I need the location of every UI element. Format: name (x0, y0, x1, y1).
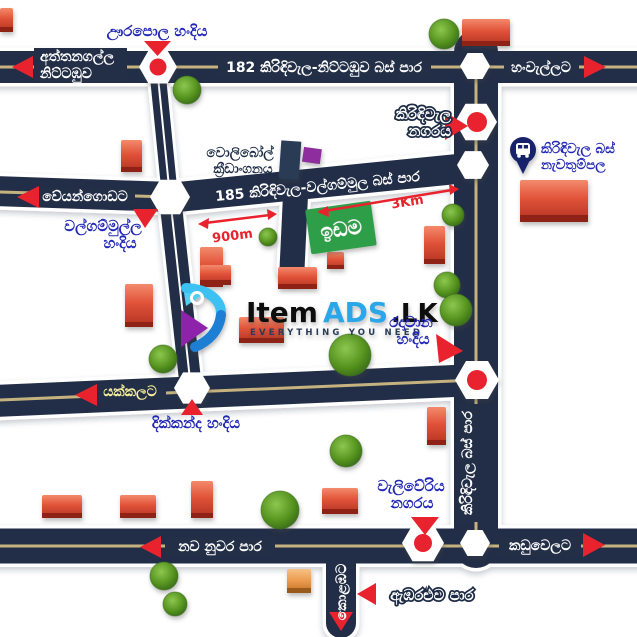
nawa-nuwara-road-label: නව නුවර පාර (177, 539, 262, 557)
yakkala-dest-label: යක්කලට (103, 383, 157, 401)
tree (173, 76, 201, 104)
bus-stop-pin (510, 137, 536, 174)
location-map: ඉඩම 900m 3Km Item ADS .LK EVER (0, 0, 637, 637)
building (322, 488, 358, 514)
building (0, 8, 13, 32)
radawana-label-line2: හංදිය (396, 330, 429, 349)
junction-dot-radawana (467, 370, 487, 390)
veyangoda-dest-label: වේයන්ගොඩට (42, 188, 128, 205)
attanagalla-dest-line2: නිට්ටඹුව (39, 65, 92, 84)
junction-dot-kirindiwela-town (467, 112, 487, 132)
tree (150, 562, 178, 590)
ambaraluwa-road-label: ඇඹරළුව පාර (390, 586, 474, 605)
attanagalla-dest-line1: අත්තනගල්ල (40, 48, 114, 66)
walgammulla-label-line2: හංදිය (103, 234, 136, 253)
building (424, 226, 445, 264)
hanwella-dest-label: හංවැල්ලට (511, 59, 571, 77)
weliweriya-label-line2: නගරය (390, 494, 434, 512)
arrow-west-ambaraluwa (357, 583, 376, 605)
kaduwela-dest-label: කඩුවෙලට (509, 538, 571, 556)
junction-dot-urapola (150, 59, 167, 76)
measure-head-west-left (198, 218, 209, 229)
building (327, 252, 344, 269)
tree (261, 491, 299, 529)
tree (259, 228, 277, 246)
bus-stop-label-line1: කිරිඳිවැල බස් (541, 140, 616, 158)
bus-stop-label-line2: නැවතුම්පල (540, 156, 606, 174)
tree (442, 204, 464, 226)
volleyball-court-building (279, 140, 302, 179)
volleyball-label-line2: ක්‍රීඩාංගනය (213, 161, 272, 179)
logo-word-item: Item (246, 296, 318, 329)
measure-label-3km: 3Km (390, 193, 425, 213)
colombo-dest-label: කොළඹට (334, 564, 351, 621)
tree (440, 294, 472, 326)
purple-building (302, 147, 322, 164)
measure-label-900m: 900m (211, 227, 253, 247)
tree (329, 334, 371, 376)
building (120, 495, 156, 518)
building (462, 19, 510, 46)
measure-head-west-right (267, 209, 277, 220)
junction-dot-weliweriya (414, 534, 432, 552)
volleyball-label-line1: වොලිබෝල් (206, 144, 274, 162)
building (278, 267, 317, 289)
measure-line-west (205, 215, 270, 223)
tree (330, 435, 362, 467)
building (121, 140, 142, 172)
route-182-label: 182 කිරිඳිවැල-නිට්ටඹුව බස් පාර (226, 59, 422, 78)
building (42, 495, 82, 518)
building (125, 284, 153, 327)
building (427, 407, 446, 445)
tree (163, 592, 187, 616)
road-center-lines (0, 60, 637, 546)
building-orange (287, 569, 311, 593)
tree (149, 345, 177, 373)
road-land-stub (292, 185, 296, 269)
building (191, 481, 213, 518)
tree (429, 19, 459, 49)
kirindiwela-bus-road-label: කිරිඳිවැල බස් පාර (459, 410, 477, 515)
dikkanda-label: දික්කන්ද හංදිය (151, 414, 240, 433)
building (200, 265, 231, 285)
urapola-junction-label: ඌරපොල හංදිය (107, 22, 208, 41)
building (520, 180, 588, 222)
kirindiwela-town-line2: නගරය (407, 122, 451, 140)
logo-word-ads: ADS (323, 296, 388, 329)
map-canvas: ඉඩම 900m 3Km Item ADS .LK EVER (0, 0, 637, 637)
